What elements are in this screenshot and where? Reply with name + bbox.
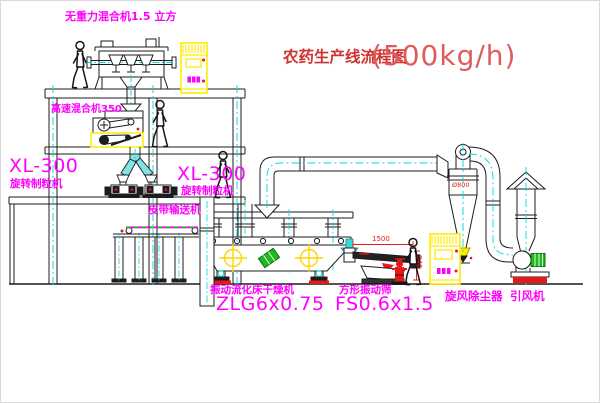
worker-figure: [73, 42, 88, 88]
granulator-right: [143, 182, 177, 198]
fluid-bed-dryer: [203, 200, 358, 284]
gravity-mixer: [85, 37, 177, 111]
vibrating-sieve: [344, 241, 420, 284]
label-granulator-right-model: XL-300: [177, 165, 246, 184]
cad-flow-diagram: 农药生产线流程图 (500kg/h) 无重力混合机1.5 立方 高速混合机350…: [0, 0, 600, 403]
label-dryer-model: ZLG6x0.75: [216, 295, 324, 314]
label-granulator-left-model: XL-300: [9, 157, 78, 176]
label-sieve-model: FS0.6x1.5: [335, 295, 434, 314]
y-chute: [117, 147, 157, 182]
dim-sieve-length: 1500: [372, 236, 390, 243]
label-granulator-left-name: 旋转制粒机: [10, 179, 63, 190]
control-cabinet-2: [430, 234, 460, 284]
label-fan: 引风机: [510, 291, 545, 303]
dim-cyclone-diameter: Ø800: [452, 182, 470, 189]
diagram-capacity: (500kg/h): [371, 42, 516, 70]
exhaust-duct: [255, 155, 448, 218]
draft-fan: [511, 251, 549, 283]
label-cyclone: 旋风除尘器: [445, 291, 503, 303]
label-gravity-mixer: 无重力混合机1.5 立方: [65, 11, 176, 22]
belt-conveyor: [112, 227, 199, 282]
dim-sieve-height: 340: [415, 255, 422, 268]
worker-figure: [153, 101, 168, 147]
label-belt-conveyor: 皮带输送机: [148, 205, 201, 216]
granulator-left: [105, 182, 143, 198]
control-cabinet-1: [181, 43, 207, 93]
label-granulator-right-name: 旋转制粒机: [181, 186, 234, 197]
label-high-speed-mixer: 高速混合机350: [51, 105, 122, 115]
